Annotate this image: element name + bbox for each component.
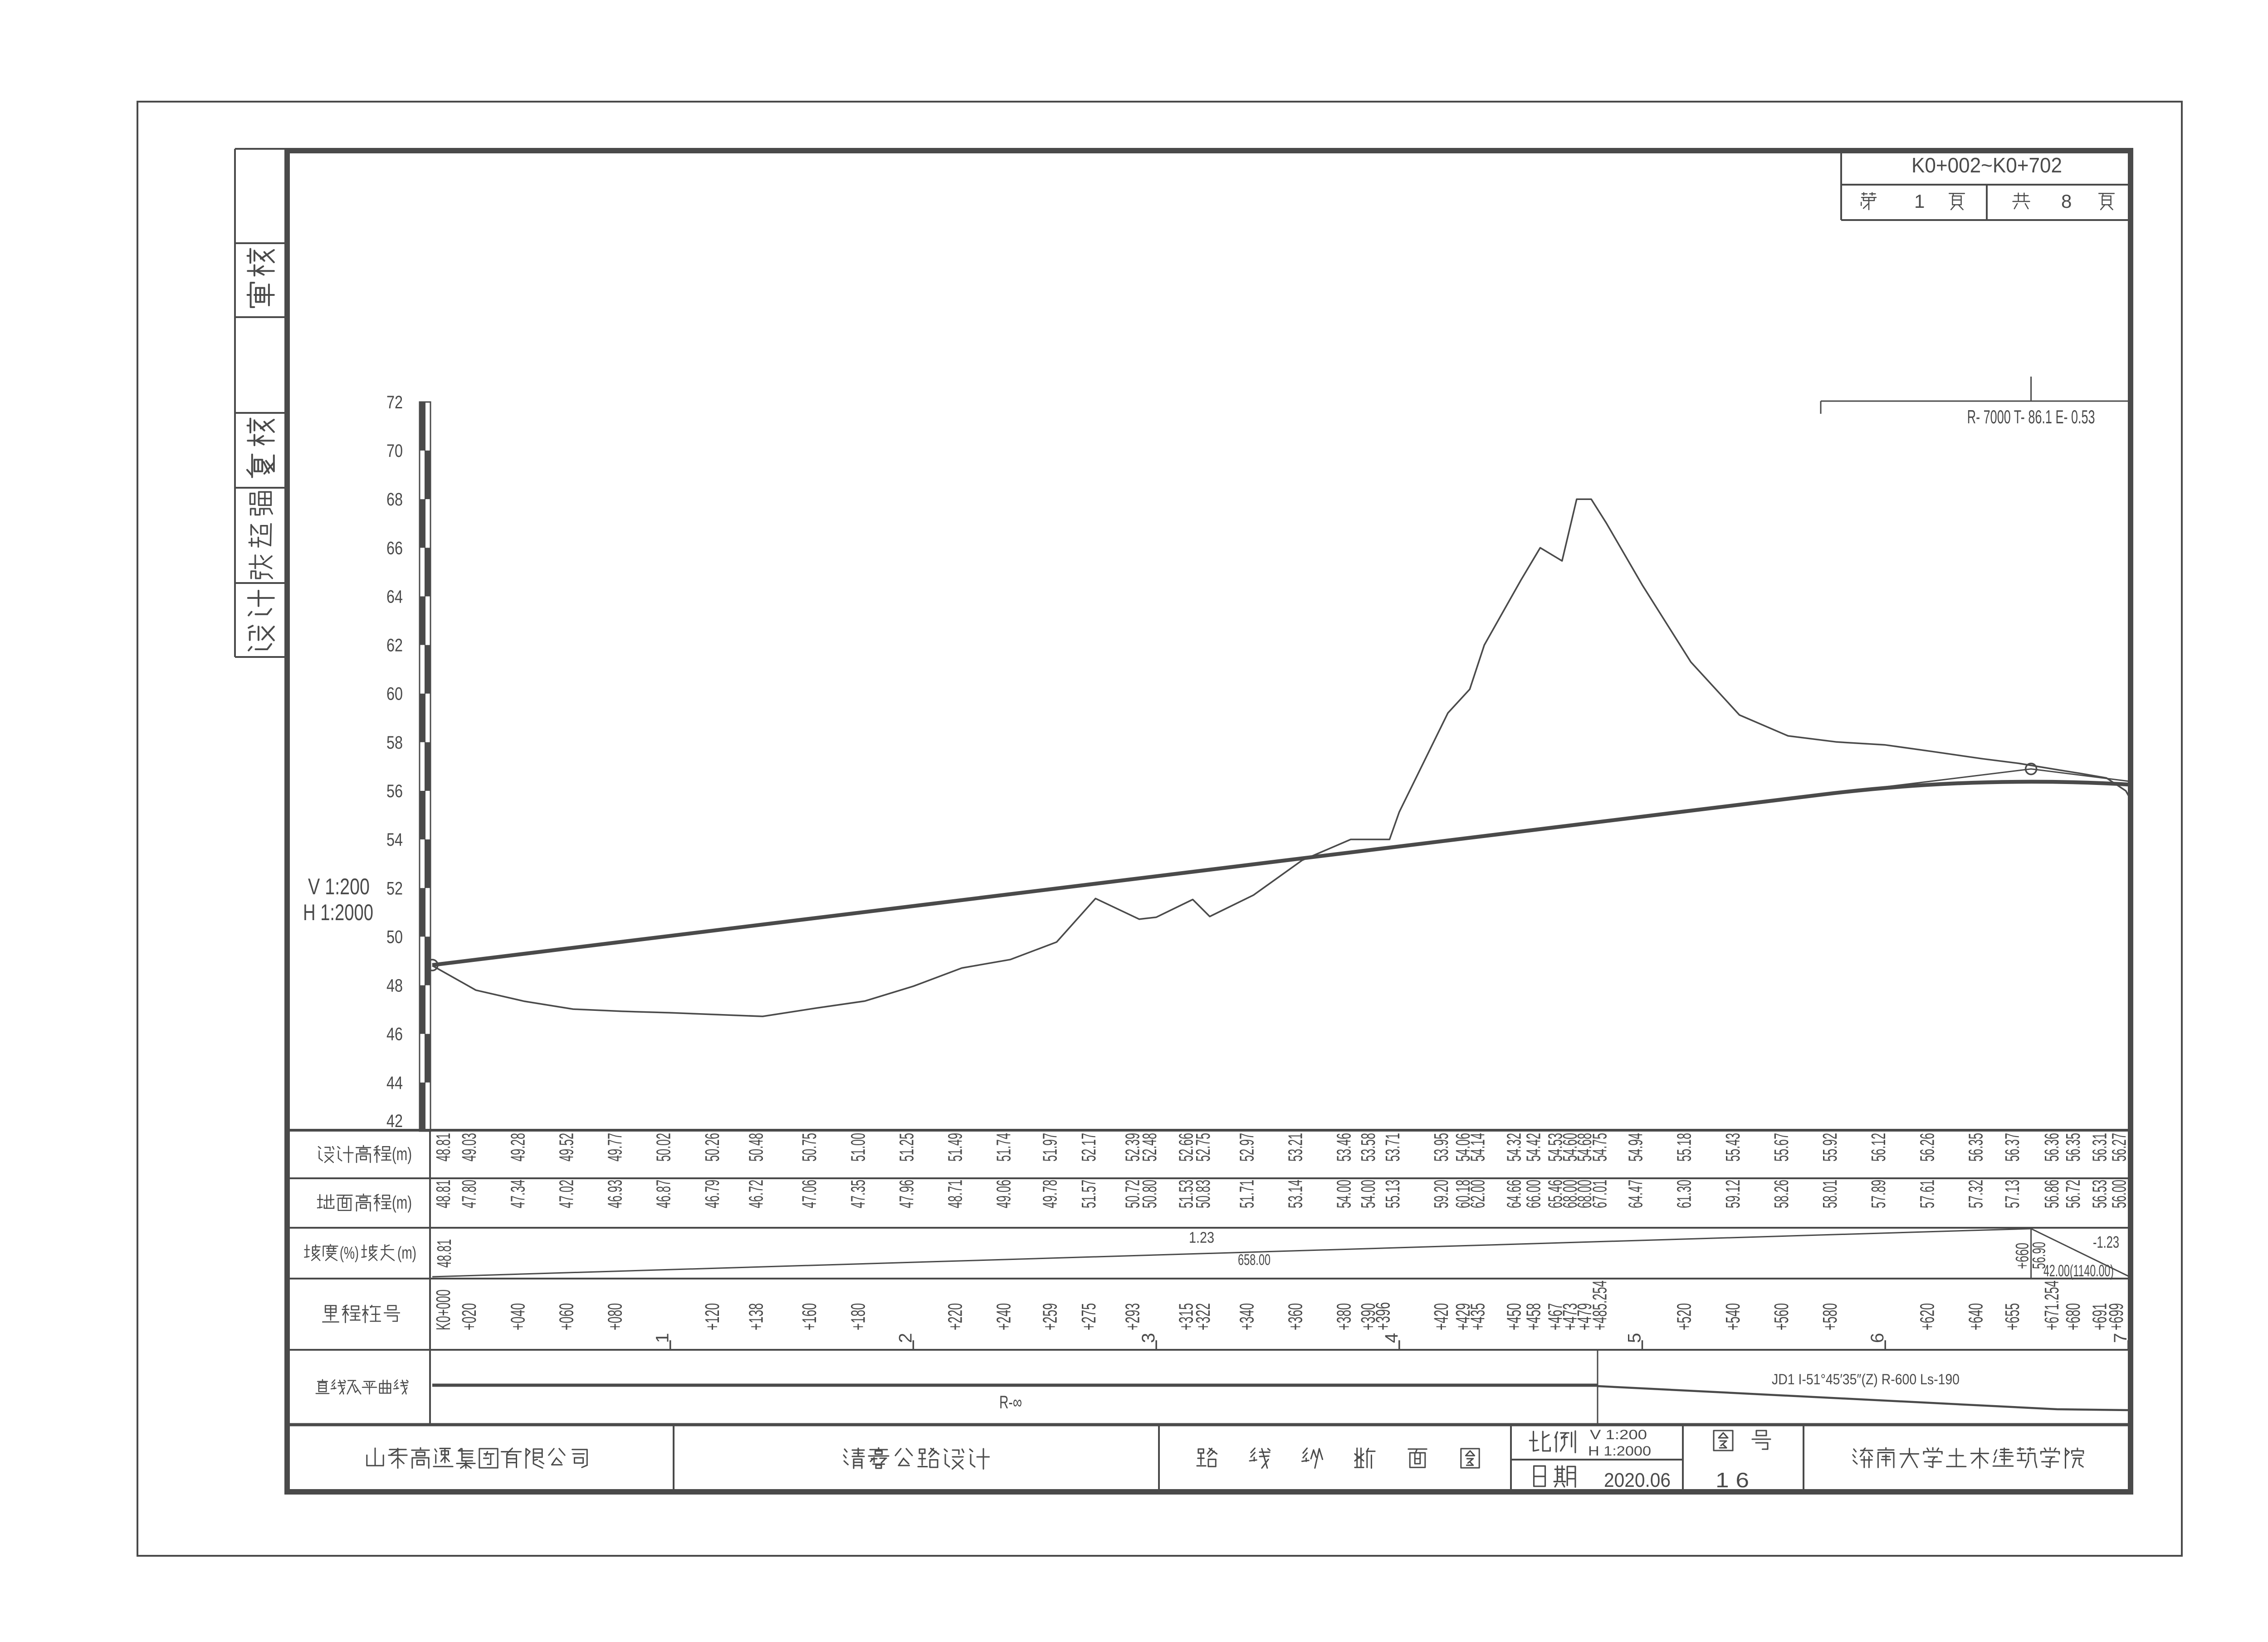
- svg-text:56.35: 56.35: [1965, 1133, 1987, 1162]
- svg-text:(m): (m): [392, 1193, 412, 1213]
- svg-text:52.48: 52.48: [1139, 1133, 1161, 1162]
- svg-text:+485.254: +485.254: [1589, 1280, 1611, 1330]
- svg-text:59.20: 59.20: [1430, 1180, 1452, 1208]
- svg-text:55.67: 55.67: [1770, 1133, 1793, 1162]
- svg-text:+540: +540: [1722, 1303, 1744, 1330]
- svg-text:53.58: 53.58: [1357, 1133, 1379, 1162]
- svg-text:54.14: 54.14: [1466, 1133, 1489, 1162]
- svg-text:H 1:2000: H 1:2000: [303, 900, 373, 925]
- svg-text:+340: +340: [1236, 1303, 1258, 1330]
- svg-text:50.83: 50.83: [1192, 1180, 1214, 1208]
- svg-text:K0+002~K0+702: K0+002~K0+702: [1911, 153, 2062, 177]
- svg-text:52.75: 52.75: [1192, 1133, 1214, 1162]
- svg-text:42: 42: [386, 1111, 403, 1131]
- svg-text:+560: +560: [1770, 1303, 1793, 1330]
- svg-text:54.00: 54.00: [1357, 1180, 1379, 1208]
- svg-text:57.32: 57.32: [1965, 1180, 1987, 1208]
- svg-text:59.12: 59.12: [1722, 1180, 1744, 1208]
- svg-text:57.61: 57.61: [1916, 1180, 1938, 1208]
- svg-text:56.86: 56.86: [2041, 1180, 2063, 1208]
- svg-text:56.31: 56.31: [2089, 1133, 2111, 1162]
- svg-text:+240: +240: [993, 1303, 1015, 1330]
- svg-text:+275: +275: [1078, 1303, 1100, 1330]
- svg-text:49.06: 49.06: [993, 1180, 1015, 1208]
- svg-text:55.92: 55.92: [1819, 1133, 1841, 1162]
- svg-text:K0+000: K0+000: [432, 1289, 455, 1330]
- svg-text:55.43: 55.43: [1722, 1133, 1744, 1162]
- svg-text:+293: +293: [1122, 1303, 1144, 1330]
- svg-text:+420: +420: [1430, 1303, 1452, 1330]
- svg-text:+655: +655: [2001, 1303, 2024, 1330]
- svg-text:51.00: 51.00: [847, 1133, 869, 1162]
- svg-text:+458: +458: [1523, 1303, 1545, 1330]
- svg-text:(m): (m): [392, 1144, 412, 1164]
- svg-text:+060: +060: [555, 1303, 577, 1330]
- svg-text:56: 56: [386, 781, 403, 801]
- svg-text:56.37: 56.37: [2001, 1133, 2024, 1162]
- svg-text:52.97: 52.97: [1236, 1133, 1258, 1162]
- svg-text:58.26: 58.26: [1770, 1180, 1793, 1208]
- svg-text:+360: +360: [1285, 1303, 1307, 1330]
- svg-text:47.96: 47.96: [895, 1180, 918, 1208]
- svg-text:47.34: 47.34: [507, 1180, 529, 1208]
- svg-text:56.12: 56.12: [1867, 1133, 1890, 1162]
- svg-text:53.21: 53.21: [1285, 1133, 1307, 1162]
- svg-text:53.14: 53.14: [1285, 1180, 1307, 1208]
- svg-text:52: 52: [386, 878, 403, 898]
- svg-text:56.26: 56.26: [1916, 1133, 1938, 1162]
- svg-text:2: 2: [895, 1333, 915, 1343]
- svg-text:50.75: 50.75: [798, 1133, 821, 1162]
- svg-text:2020.06: 2020.06: [1604, 1469, 1671, 1491]
- svg-text:+699: +699: [2105, 1303, 2127, 1330]
- svg-text:1: 1: [1914, 191, 1925, 212]
- svg-text:52.17: 52.17: [1078, 1133, 1100, 1162]
- svg-text:47.06: 47.06: [798, 1180, 821, 1208]
- svg-text:44: 44: [386, 1073, 403, 1093]
- svg-text:51.74: 51.74: [993, 1133, 1015, 1162]
- svg-text:42.00(1140.00): 42.00(1140.00): [2043, 1261, 2114, 1280]
- svg-text:46.72: 46.72: [745, 1180, 767, 1208]
- svg-text:64.66: 64.66: [1503, 1180, 1525, 1208]
- svg-text:56.72: 56.72: [2062, 1180, 2084, 1208]
- svg-text:51.97: 51.97: [1039, 1133, 1061, 1162]
- svg-text:66: 66: [386, 538, 403, 558]
- svg-text:62.00: 62.00: [1466, 1180, 1489, 1208]
- svg-text:50.80: 50.80: [1139, 1180, 1161, 1208]
- svg-text:+120: +120: [701, 1303, 723, 1330]
- svg-text:1.23: 1.23: [1189, 1229, 1214, 1246]
- svg-text:+180: +180: [847, 1303, 869, 1330]
- svg-text:+620: +620: [1916, 1303, 1938, 1330]
- svg-text:+080: +080: [604, 1303, 626, 1330]
- svg-text:6: 6: [1867, 1333, 1887, 1343]
- svg-text:R-∞: R-∞: [999, 1392, 1022, 1412]
- svg-text:1 6: 1 6: [1716, 1468, 1749, 1492]
- svg-text:46.87: 46.87: [653, 1180, 675, 1208]
- svg-text:53.71: 53.71: [1382, 1133, 1404, 1162]
- svg-text:54.75: 54.75: [1589, 1133, 1611, 1162]
- svg-text:+220: +220: [944, 1303, 967, 1330]
- svg-text:+450: +450: [1503, 1303, 1525, 1330]
- svg-text:61.30: 61.30: [1673, 1180, 1696, 1208]
- svg-text:54.94: 54.94: [1625, 1133, 1647, 1162]
- svg-text:+396: +396: [1372, 1302, 1394, 1330]
- svg-text:66.00: 66.00: [1523, 1180, 1545, 1208]
- svg-text:V 1:200: V 1:200: [308, 874, 370, 899]
- svg-text:+671.254: +671.254: [2041, 1280, 2063, 1330]
- svg-text:57.89: 57.89: [1867, 1180, 1890, 1208]
- svg-text:49.52: 49.52: [555, 1133, 577, 1162]
- svg-text:47.35: 47.35: [847, 1180, 869, 1208]
- svg-text:58: 58: [386, 733, 403, 753]
- svg-text:57.13: 57.13: [2001, 1180, 2024, 1208]
- svg-text:50.48: 50.48: [745, 1133, 767, 1162]
- svg-text:H 1:2000: H 1:2000: [1588, 1444, 1651, 1459]
- svg-text:+580: +580: [1819, 1303, 1841, 1330]
- svg-text:658.00: 658.00: [1238, 1251, 1271, 1269]
- svg-text:+040: +040: [507, 1303, 529, 1330]
- svg-text:+322: +322: [1192, 1303, 1214, 1330]
- svg-text:+160: +160: [798, 1303, 821, 1330]
- svg-text:49.77: 49.77: [604, 1133, 626, 1162]
- svg-text:54.32: 54.32: [1503, 1133, 1525, 1162]
- svg-text:48.71: 48.71: [944, 1180, 967, 1208]
- svg-text:54.00: 54.00: [1333, 1180, 1355, 1208]
- svg-text:46: 46: [386, 1024, 403, 1044]
- svg-text:+680: +680: [2062, 1303, 2084, 1330]
- svg-text:48.81: 48.81: [432, 1133, 455, 1162]
- svg-text:64.47: 64.47: [1625, 1180, 1647, 1208]
- svg-text:56.53: 56.53: [2089, 1180, 2111, 1208]
- svg-text:+640: +640: [1965, 1303, 1987, 1330]
- svg-text:53.95: 53.95: [1430, 1133, 1452, 1162]
- svg-text:62: 62: [386, 636, 403, 656]
- svg-text:49.28: 49.28: [507, 1133, 529, 1162]
- svg-text:48.81: 48.81: [433, 1239, 455, 1268]
- svg-text:8: 8: [2061, 191, 2072, 212]
- svg-text:3: 3: [1139, 1333, 1158, 1343]
- svg-text:53.46: 53.46: [1333, 1133, 1355, 1162]
- svg-text:+138: +138: [745, 1303, 767, 1330]
- svg-text:+259: +259: [1039, 1303, 1061, 1330]
- svg-text:+435: +435: [1466, 1303, 1489, 1330]
- svg-text:46.79: 46.79: [701, 1180, 723, 1208]
- svg-text:55.18: 55.18: [1673, 1133, 1696, 1162]
- svg-text:72: 72: [386, 392, 403, 412]
- svg-text:1: 1: [653, 1333, 673, 1343]
- svg-text:+020: +020: [458, 1303, 480, 1330]
- svg-text:54.42: 54.42: [1523, 1133, 1545, 1162]
- svg-text:54: 54: [386, 830, 403, 850]
- svg-text:67.01: 67.01: [1589, 1180, 1611, 1208]
- svg-text:R- 7000 T- 86.1 E- 0.53: R- 7000 T- 86.1 E- 0.53: [1967, 406, 2095, 427]
- svg-text:47.80: 47.80: [458, 1180, 480, 1208]
- svg-text:4: 4: [1382, 1333, 1402, 1343]
- svg-text:51.25: 51.25: [895, 1133, 918, 1162]
- svg-text:51.57: 51.57: [1078, 1180, 1100, 1208]
- svg-text:7: 7: [2111, 1333, 2131, 1343]
- svg-text:50: 50: [386, 927, 403, 947]
- svg-text:60: 60: [386, 684, 403, 704]
- svg-text:51.49: 51.49: [944, 1133, 967, 1162]
- svg-text:56.00: 56.00: [2108, 1180, 2131, 1208]
- svg-text:64: 64: [386, 587, 403, 607]
- svg-text:56.35: 56.35: [2062, 1133, 2084, 1162]
- svg-text:58.01: 58.01: [1819, 1180, 1841, 1208]
- svg-text:JD1 I-51°45′35″(Z) R-600 Ls-19: JD1 I-51°45′35″(Z) R-600 Ls-190: [1772, 1371, 1960, 1387]
- svg-text:48: 48: [386, 976, 403, 996]
- svg-text:49.03: 49.03: [458, 1133, 480, 1162]
- svg-text:51.71: 51.71: [1236, 1180, 1258, 1208]
- svg-text:47.02: 47.02: [555, 1180, 577, 1208]
- svg-text:68: 68: [386, 490, 403, 510]
- svg-text:50.02: 50.02: [653, 1133, 675, 1162]
- svg-text:48.81: 48.81: [432, 1180, 455, 1208]
- svg-text:(m): (m): [397, 1244, 416, 1263]
- svg-text:56.36: 56.36: [2041, 1133, 2063, 1162]
- svg-text:+380: +380: [1333, 1303, 1355, 1330]
- svg-text:70: 70: [386, 441, 403, 461]
- svg-text:V 1:200: V 1:200: [1590, 1427, 1647, 1442]
- svg-text:46.93: 46.93: [604, 1180, 626, 1208]
- svg-text:49.78: 49.78: [1039, 1180, 1061, 1208]
- svg-text:-1.23: -1.23: [2093, 1233, 2119, 1251]
- svg-text:55.13: 55.13: [1382, 1180, 1404, 1208]
- svg-text:56.27: 56.27: [2108, 1133, 2131, 1162]
- svg-text:+520: +520: [1673, 1303, 1696, 1330]
- svg-text:(%): (%): [340, 1244, 359, 1263]
- svg-text:5: 5: [1625, 1333, 1645, 1343]
- svg-text:50.26: 50.26: [701, 1133, 723, 1162]
